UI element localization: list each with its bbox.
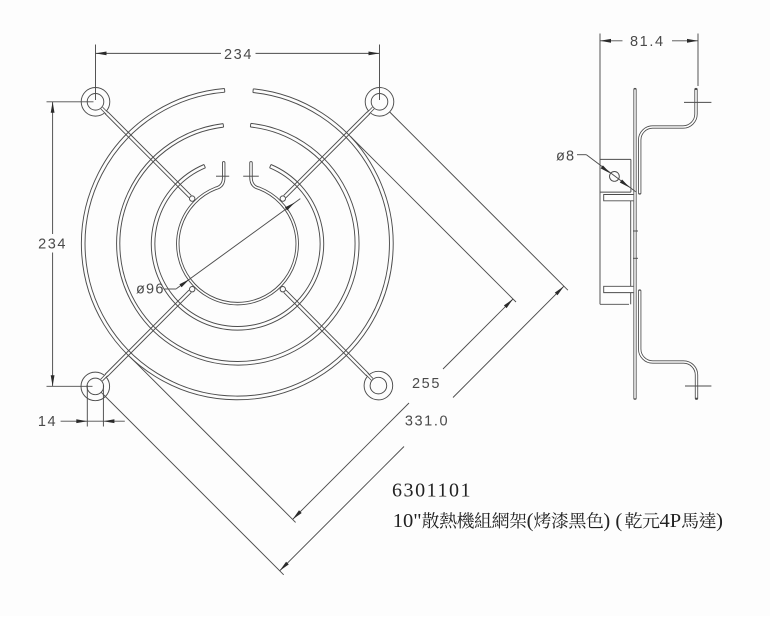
svg-text:) (: ) ( — [603, 510, 622, 532]
svg-text:4P: 4P — [660, 510, 682, 532]
svg-text:6301101: 6301101 — [392, 480, 472, 502]
svg-text:81.4: 81.4 — [630, 34, 665, 50]
svg-text:ø8: ø8 — [556, 149, 575, 165]
svg-text:(: ( — [527, 510, 534, 532]
svg-text:331.0: 331.0 — [405, 414, 449, 430]
svg-text:14: 14 — [38, 414, 57, 430]
svg-text:): ) — [716, 510, 723, 532]
svg-text:234: 234 — [38, 236, 67, 252]
svg-text:10": 10" — [393, 510, 422, 532]
svg-text:255: 255 — [412, 376, 441, 392]
svg-text:ø96: ø96 — [136, 282, 165, 298]
svg-text:234: 234 — [224, 47, 253, 63]
